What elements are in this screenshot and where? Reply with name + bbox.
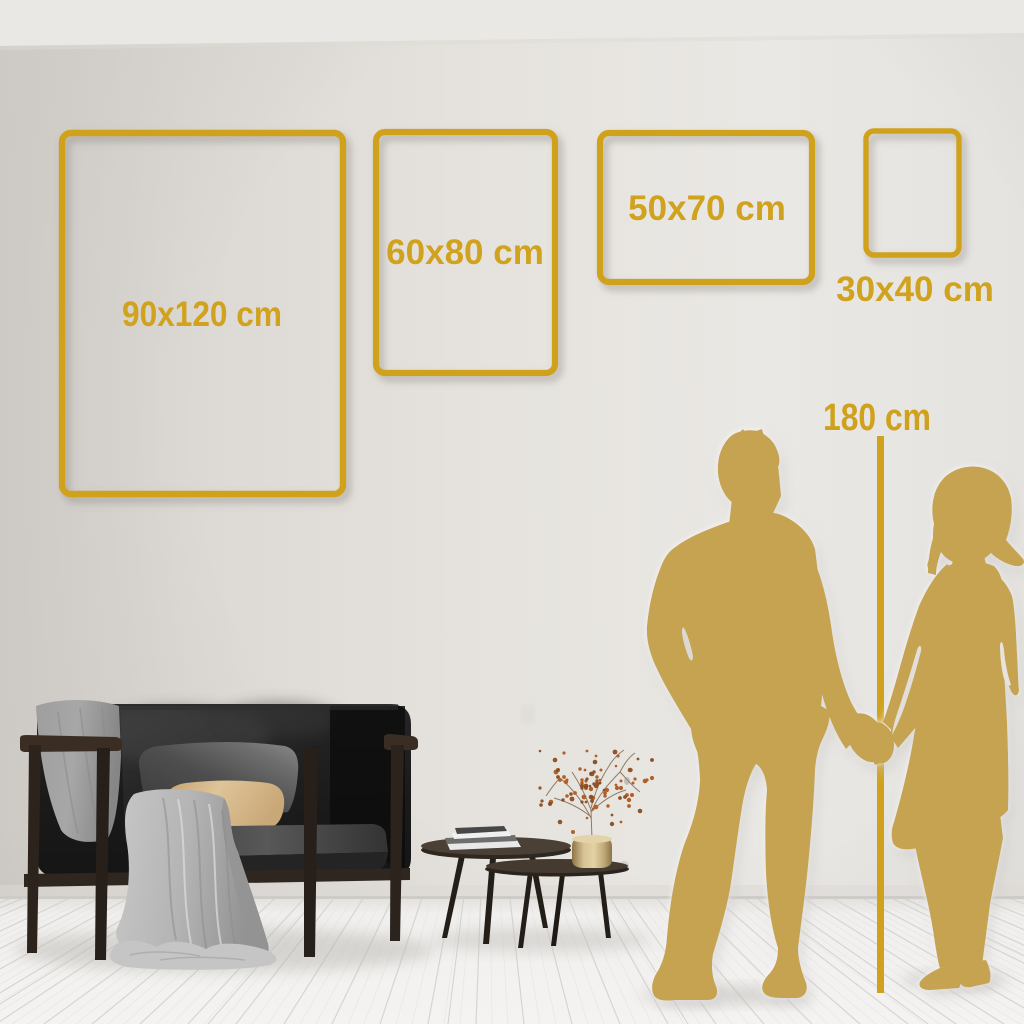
svg-text:60x80 cm: 60x80 cm — [386, 233, 544, 272]
svg-text:30x40 cm: 30x40 cm — [836, 270, 994, 309]
svg-text:180 cm: 180 cm — [823, 397, 931, 439]
svg-text:90x120 cm: 90x120 cm — [122, 295, 282, 334]
svg-text:50x70 cm: 50x70 cm — [628, 189, 786, 228]
